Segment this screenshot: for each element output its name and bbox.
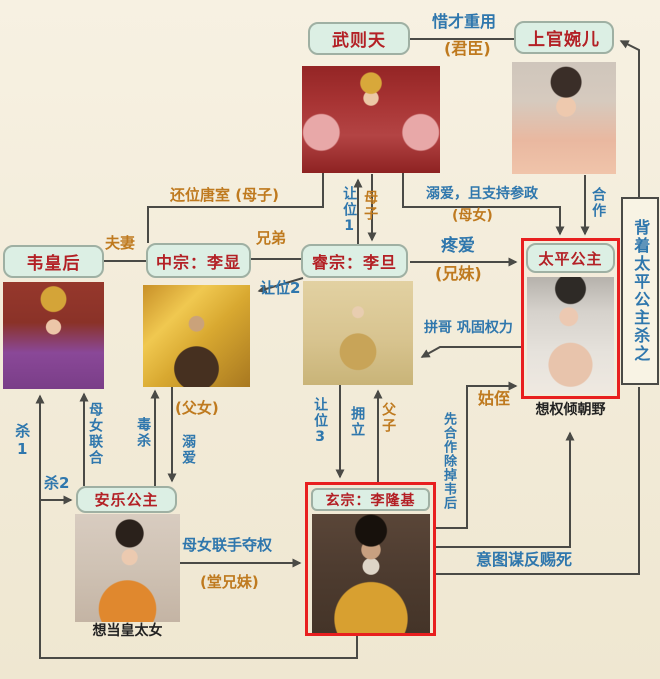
zhongzong-photo <box>143 285 250 387</box>
label-sha1: 杀1 <box>13 423 30 460</box>
label-munv: (母女) <box>452 208 493 224</box>
anle-caption: 想当皇太女 <box>75 623 180 639</box>
label-dusha: 毒杀 <box>135 417 151 449</box>
weihuanghou-photo <box>3 282 104 389</box>
label-munv-lianhe: 母女联合 <box>87 402 103 466</box>
label-xian-hezuo: 先合作除掉韦后 <box>440 412 455 510</box>
xuanzong-photo <box>312 514 430 633</box>
node-ruizong: 睿宗：李旦 <box>301 244 408 278</box>
node-weihuanghou: 韦皇后 <box>3 245 104 278</box>
node-anle: 安乐公主 <box>76 486 177 513</box>
label-guzhi: 姑侄 <box>478 390 510 408</box>
label-tangxiongmei: (堂兄妹) <box>200 574 259 591</box>
label-sha2: 杀2 <box>44 475 69 492</box>
label-niai-canzheng: 溺爱，且支持参政 <box>426 186 538 202</box>
label-rangwei1: 让位1 <box>341 186 357 236</box>
label-xiongdi: 兄弟 <box>256 230 286 247</box>
label-beizhe-sha-box: 背着太平公主杀之 <box>621 197 659 385</box>
label-funv: (父女) <box>175 400 219 417</box>
label-beizhe-sha: 背着太平公主杀之 <box>631 219 649 363</box>
label-hezuo: 合作 <box>590 187 606 219</box>
label-xicai-zhongyong: 惜才重用 <box>432 13 496 31</box>
shangguanwaner-photo <box>512 62 616 174</box>
node-xuanzong: 玄宗：李隆基 <box>311 488 430 511</box>
node-zhongzong: 中宗：李显 <box>146 243 251 278</box>
label-munv-lianshou: 母女联手夺权 <box>182 537 272 554</box>
wuzetian-photo <box>302 66 440 173</box>
anle-photo <box>75 514 180 622</box>
node-shangguanwaner: 上官婉儿 <box>514 21 614 54</box>
node-taiping: 太平公主 <box>526 243 615 273</box>
taiping-photo <box>527 277 614 394</box>
label-tengai: 疼爱 <box>441 237 475 257</box>
label-rangwei3: 让位3 <box>312 397 328 447</box>
relationship-diagram: 武则天 上官婉儿 韦皇后 中宗：李显 睿宗：李旦 太平公主 安乐公主 玄宗：李隆… <box>0 0 660 679</box>
label-fuqi: 夫妻 <box>105 235 135 252</box>
label-pingge-gonggu: 拼哥 巩固权力 <box>424 320 513 336</box>
ruizong-photo <box>303 281 413 385</box>
label-huanwei-tangshi: 还位唐室 (母子) <box>170 187 279 204</box>
label-niai: 溺爱 <box>180 434 196 466</box>
label-yitu-moufan: 意图谋反赐死 <box>476 551 572 569</box>
node-wuzetian: 武则天 <box>308 22 410 55</box>
label-junchen: (君臣) <box>444 40 491 58</box>
label-rangwei2: 让位2 <box>260 280 300 297</box>
label-fuzi: 父子 <box>380 402 396 434</box>
label-muzi: 母子 <box>362 190 378 222</box>
label-yongli: 拥立 <box>349 406 365 438</box>
taiping-caption: 想权倾朝野 <box>521 402 620 418</box>
label-xiongmei: (兄妹) <box>435 265 482 283</box>
